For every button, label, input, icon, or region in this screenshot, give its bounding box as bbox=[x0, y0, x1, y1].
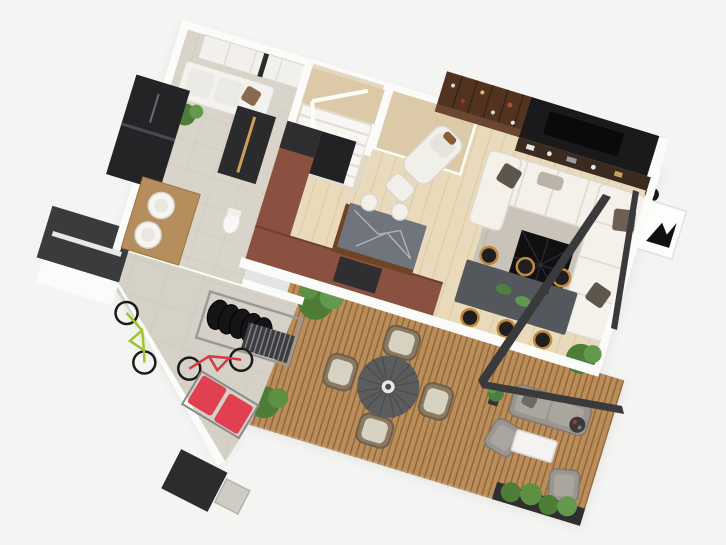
floor-plan-render bbox=[0, 0, 726, 545]
floor-plan-svg bbox=[0, 0, 726, 545]
